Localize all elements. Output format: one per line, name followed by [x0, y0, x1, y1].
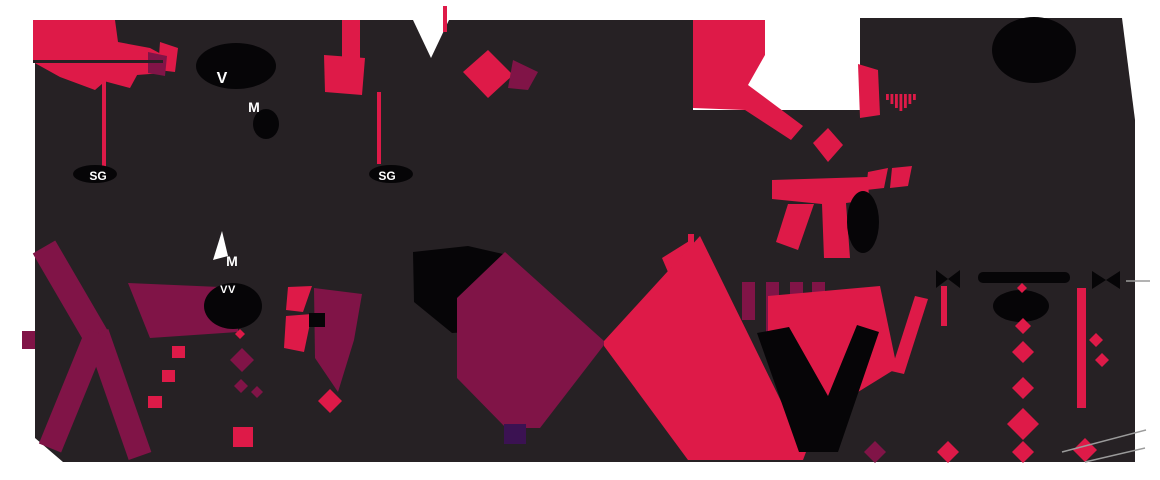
tank-blob-top-right — [992, 17, 1076, 83]
pipe-stub-top — [443, 6, 447, 32]
label-valve-mid: VV — [220, 284, 236, 296]
schematic-diagram: V M SG SG M VV — [0, 0, 1160, 480]
drop-line-right — [1077, 288, 1086, 408]
pipe-drop-left — [102, 75, 106, 167]
equipment-blob-right — [993, 290, 1049, 322]
pipe-drop-mid — [377, 92, 381, 164]
fitting-red-1 — [172, 346, 185, 358]
fitting-red-3 — [148, 396, 162, 408]
pipe-wedge-maroon-left — [148, 52, 167, 76]
pump-blob-top — [196, 43, 276, 89]
pipe-joint-mid — [324, 55, 365, 95]
label-valve-top: V — [217, 70, 228, 87]
fitting-red-2 — [162, 370, 175, 382]
label-motor-mid: M — [226, 253, 238, 269]
equipment-blob-mid — [847, 191, 879, 253]
header-bar — [978, 272, 1070, 283]
pipe-divider-line — [33, 60, 163, 63]
bowtie-purple-foot — [504, 424, 526, 444]
drop-line-left — [941, 286, 947, 326]
edge-stub-left — [22, 331, 35, 349]
pipe-wedge-right — [858, 64, 880, 118]
label-sg-left: SG — [89, 169, 106, 183]
chain-outlet — [233, 427, 253, 447]
label-motor-top: M — [248, 99, 260, 115]
label-sg-right: SG — [378, 169, 395, 183]
cluster-block — [309, 313, 325, 327]
